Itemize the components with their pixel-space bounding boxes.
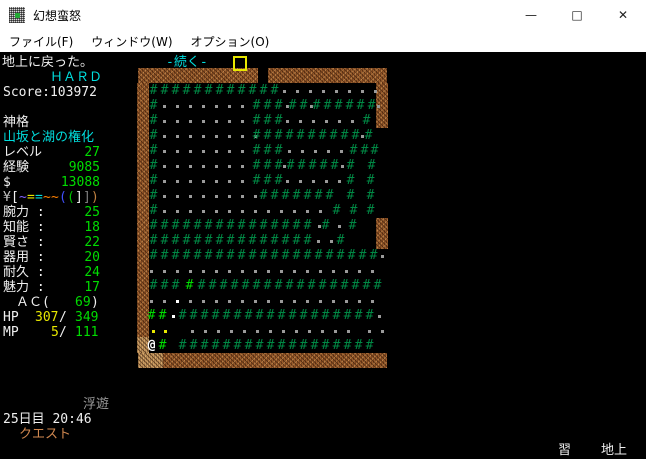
map-wall xyxy=(163,353,387,368)
map-tree-run: # xyxy=(365,189,376,202)
map-floor-run xyxy=(376,249,389,258)
map-tree-run: # xyxy=(363,129,374,142)
map-tree-run: ### xyxy=(251,99,284,112)
ac-value: 69 xyxy=(75,295,91,310)
map-tree-run: ### xyxy=(251,174,284,187)
map-yellow-dot xyxy=(159,324,172,333)
menu-bar: ファイル(F)ウィンドウ(W)オプション(O) xyxy=(0,30,646,53)
hp-current: 307 xyxy=(35,310,58,325)
equipment-char-11: ) xyxy=(91,190,99,205)
mp-max: 111 xyxy=(75,325,98,340)
map-floor-run xyxy=(158,204,327,213)
map-tree-run: ### xyxy=(251,144,284,157)
map-floor-run xyxy=(158,144,249,153)
footer-location: 地上 xyxy=(601,443,627,458)
day-time: 25日目 20:46 xyxy=(3,412,92,427)
map-tree-run: # xyxy=(366,159,377,172)
stat-wis-value: 22 xyxy=(40,235,100,250)
map-wall xyxy=(268,68,387,83)
level-value: 27 xyxy=(40,145,100,160)
score: Score:103972 xyxy=(3,85,97,100)
map-floor-run xyxy=(158,114,249,123)
stat-wis-label: 賢さ : xyxy=(3,235,45,250)
map-floor-run xyxy=(278,84,382,93)
map-tree-run: ##################### xyxy=(148,249,379,262)
map-tree-run: # xyxy=(331,204,342,217)
map-floor-run xyxy=(186,324,355,333)
stat-con-value: 24 xyxy=(40,265,100,280)
map-tree-run: ### xyxy=(251,114,284,127)
map-bright-tree-run: ## xyxy=(146,309,168,322)
minimize-button[interactable]: — xyxy=(508,0,554,30)
map-tree-run: # xyxy=(365,174,376,187)
equipment-char-7: ( xyxy=(59,190,67,205)
map-tree-run: ################# xyxy=(196,279,383,292)
map-floor-run xyxy=(158,129,262,138)
mp-current: 5 xyxy=(51,325,59,340)
ac-close: ) xyxy=(91,295,99,310)
equipment-char-9: ] xyxy=(75,190,83,205)
map-floor-run xyxy=(145,294,171,303)
map-wall xyxy=(138,353,163,368)
stat-chr-value: 17 xyxy=(40,280,100,295)
exp-value: 9085 xyxy=(40,160,100,175)
gold-value: 13088 xyxy=(40,175,100,190)
map-floor-run xyxy=(158,174,249,183)
map-floor-run xyxy=(373,309,386,318)
hp-separator: / xyxy=(59,310,67,325)
map-tree-run: ####### xyxy=(258,189,335,202)
map-tree-run: ########## xyxy=(251,129,361,142)
hp-max: 349 xyxy=(75,310,98,325)
map-floor-run xyxy=(158,99,249,108)
stat-int-value: 18 xyxy=(40,220,100,235)
equipment-char-3: = xyxy=(27,190,35,205)
map-floor-run xyxy=(333,219,346,228)
class-title: 山坂と湖の権化 xyxy=(3,130,94,145)
stat-dex-value: 20 xyxy=(40,250,100,265)
message-text: 地上に戻った。 xyxy=(2,55,93,70)
more-prompt: -続く- xyxy=(166,55,208,70)
difficulty-label: ＨＡＲＤ xyxy=(50,70,102,85)
stat-chr-label: 魅力 : xyxy=(3,280,45,295)
exp-label: 経験 xyxy=(3,160,29,175)
map-tree-run: # xyxy=(320,219,331,232)
status-levitation: 浮遊 xyxy=(83,397,109,412)
stat-dex-label: 器用 : xyxy=(3,250,45,265)
map-tree-run: # xyxy=(345,174,356,187)
stat-int-label: 知能 : xyxy=(3,220,45,235)
ac-label: ＡＣ( xyxy=(16,295,50,310)
map-player: @ xyxy=(146,339,157,352)
close-button[interactable]: ✕ xyxy=(600,0,646,30)
race-name: 神格 xyxy=(3,115,29,130)
map-floor-run xyxy=(281,174,346,183)
level-label: レベル xyxy=(3,145,42,160)
game-screen: ########################################… xyxy=(0,52,646,459)
app-window: 幻想蛮怒 — □ ✕ ファイル(F)ウィンドウ(W)オプション(O) #####… xyxy=(0,0,646,459)
map-tree-run: # xyxy=(335,234,346,247)
map-tree-run: ##### xyxy=(285,159,340,172)
map-tree-run: ############### xyxy=(148,219,313,232)
text-cursor xyxy=(233,56,247,71)
map-tree-run: ## xyxy=(348,144,370,157)
map-tree-run: ############### xyxy=(148,234,313,247)
hp-label: HP xyxy=(3,310,19,325)
map-tree-run: # xyxy=(348,204,359,217)
map-tree-run: ################## xyxy=(177,309,375,322)
map-wall xyxy=(376,218,388,249)
stat-str-value: 25 xyxy=(40,205,100,220)
map-tree-run: # xyxy=(345,159,356,172)
app-icon xyxy=(9,7,25,23)
map-floor-run xyxy=(158,189,262,198)
quest-indicator: クエスト xyxy=(19,427,71,442)
equipment-char-4: = xyxy=(35,190,43,205)
map-tree-run: ### xyxy=(148,279,181,292)
equipment-char-0: ¥ xyxy=(3,190,11,205)
map-tree-run: # xyxy=(365,204,376,217)
menu-item-0[interactable]: ファイル(F) xyxy=(0,33,82,50)
map-floor-run xyxy=(145,264,379,273)
equipment-char-1: [ xyxy=(11,190,19,205)
map-tree-run: ###### xyxy=(311,99,377,112)
map-floor-run xyxy=(281,114,359,123)
equipment-char-5: ~ xyxy=(43,190,51,205)
equipment-char-8: ( xyxy=(67,190,75,205)
map-floor-run xyxy=(363,324,389,333)
map-tree-run: # xyxy=(369,144,380,157)
map-floor-run xyxy=(372,99,385,108)
map-floor-run xyxy=(184,294,379,303)
map-tree-run: # xyxy=(361,114,372,127)
stat-con-label: 耐久 : xyxy=(3,265,45,280)
map-tree-run: # xyxy=(347,219,358,232)
window-controls: — □ ✕ xyxy=(508,0,646,30)
stat-str-label: 腕力 : xyxy=(3,205,45,220)
window-title: 幻想蛮怒 xyxy=(33,7,81,24)
maximize-button[interactable]: □ xyxy=(554,0,600,30)
gold-label: $ xyxy=(3,175,11,190)
map-bright-tree-run: # xyxy=(184,279,195,292)
map-bright-tree-run: # xyxy=(157,339,168,352)
mp-label: MP xyxy=(3,325,19,340)
equipment-char-2: ~ xyxy=(19,190,27,205)
map-tree-run: ############ xyxy=(148,84,280,97)
map-floor-run xyxy=(283,144,348,153)
map-tree-run: # xyxy=(345,189,356,202)
footer-learn: 習 xyxy=(558,443,571,458)
map-item-dot xyxy=(171,294,184,303)
equipment-char-6: ~ xyxy=(51,190,59,205)
menu-item-1[interactable]: ウィンドウ(W) xyxy=(82,33,181,50)
title-bar[interactable]: 幻想蛮怒 — □ ✕ xyxy=(0,0,646,30)
mp-separator: / xyxy=(59,325,67,340)
equipment-char-10: ] xyxy=(83,190,91,205)
map-tree-run: ################## xyxy=(177,339,375,352)
map-floor-run xyxy=(158,159,249,168)
menu-item-2[interactable]: オプション(O) xyxy=(182,33,279,50)
